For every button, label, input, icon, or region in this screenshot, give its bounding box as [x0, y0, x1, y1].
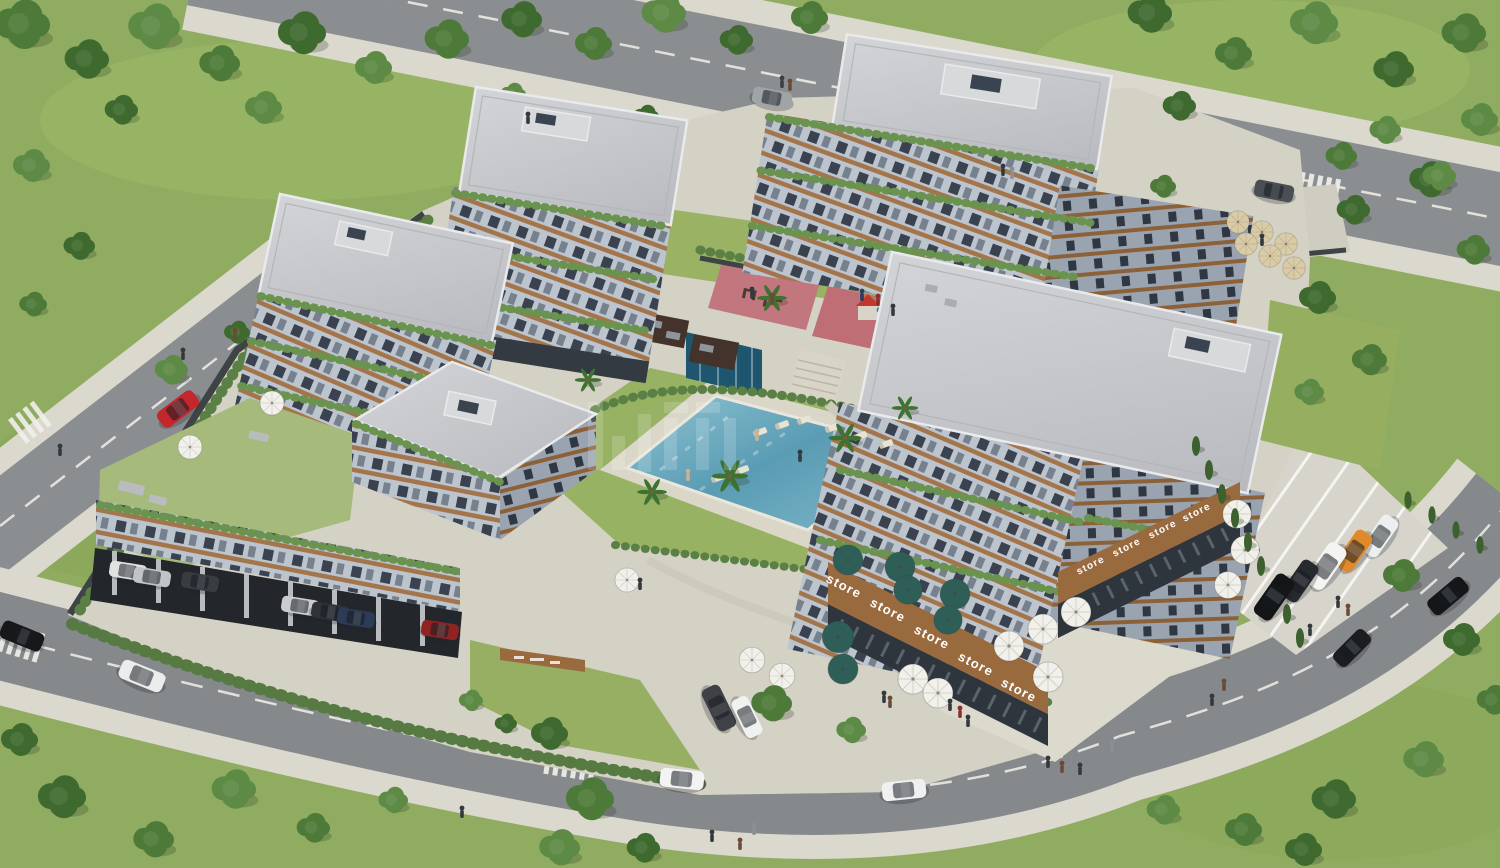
- pedestrian: [876, 294, 881, 306]
- pedestrian: [948, 699, 953, 711]
- watermark-glyph: [588, 402, 603, 470]
- patio-umbrella: [178, 435, 202, 459]
- pedestrian: [526, 112, 531, 124]
- pedestrian: [638, 578, 643, 590]
- scene-svg: Aerial 3D architectural rendering of a m…: [0, 0, 1500, 868]
- patio-umbrella: [1283, 257, 1306, 280]
- patio-umbrella: [739, 647, 765, 673]
- pedestrian: [780, 76, 785, 88]
- aerial-render: Aerial 3D architectural rendering of a m…: [0, 0, 1500, 868]
- east-lawn: [1260, 300, 1400, 470]
- pedestrian: [788, 79, 793, 91]
- pedestrian: [1210, 694, 1215, 706]
- patio-umbrella: [1259, 245, 1282, 268]
- patio-umbrella: [828, 654, 858, 684]
- pedestrian: [798, 450, 803, 462]
- watermark-glyph: [612, 436, 625, 470]
- pedestrian: [750, 287, 755, 299]
- patio-umbrella: [940, 579, 970, 609]
- pedestrian: [1110, 740, 1115, 752]
- pedestrian: [738, 838, 743, 850]
- pedestrian: [1260, 234, 1265, 246]
- pedestrian: [966, 715, 971, 727]
- patio-umbrella: [260, 391, 284, 415]
- pedestrian: [958, 706, 963, 718]
- pedestrian: [882, 691, 887, 703]
- patio-umbrella: [1215, 572, 1242, 599]
- pedestrian: [1336, 596, 1341, 608]
- pedestrian: [888, 696, 893, 708]
- patio-umbrella: [1235, 233, 1258, 256]
- patio-umbrella: [822, 621, 854, 653]
- pedestrian: [752, 823, 757, 835]
- pedestrian: [1346, 604, 1351, 616]
- patio-umbrella: [994, 631, 1024, 661]
- pedestrian: [1046, 756, 1051, 768]
- patio-umbrella: [769, 663, 795, 689]
- patio-umbrella: [1227, 211, 1250, 234]
- patio-umbrella: [1033, 662, 1063, 692]
- patio-umbrella: [833, 545, 863, 575]
- pedestrian: [891, 304, 896, 316]
- watermark-glyph: [696, 402, 720, 413]
- pedestrian: [1222, 679, 1227, 691]
- pedestrian: [460, 806, 465, 818]
- pedestrian: [1001, 164, 1006, 176]
- pedestrian: [181, 348, 186, 360]
- pedestrian: [1060, 761, 1065, 773]
- patio-umbrella: [923, 678, 953, 708]
- pedestrian: [755, 429, 760, 441]
- pedestrian: [58, 444, 63, 456]
- pedestrian: [710, 830, 715, 842]
- watermark-glyph: [696, 418, 709, 470]
- watermark-glyph: [638, 414, 651, 472]
- pedestrian: [860, 289, 865, 301]
- pedestrian: [233, 328, 238, 340]
- watermark-glyph: [664, 402, 688, 413]
- patio-umbrella: [615, 568, 639, 592]
- pedestrian: [1308, 624, 1313, 636]
- patio-umbrella: [1061, 597, 1091, 627]
- watermark-glyph: [664, 418, 677, 470]
- pedestrian: [1010, 167, 1015, 179]
- pedestrian: [1078, 763, 1083, 775]
- pedestrian: [686, 469, 691, 481]
- patio-umbrella: [894, 576, 923, 605]
- watermark-glyph: [724, 418, 736, 470]
- patio-umbrella: [934, 606, 963, 635]
- pedestrian: [770, 293, 775, 305]
- patio-umbrella: [1028, 614, 1058, 644]
